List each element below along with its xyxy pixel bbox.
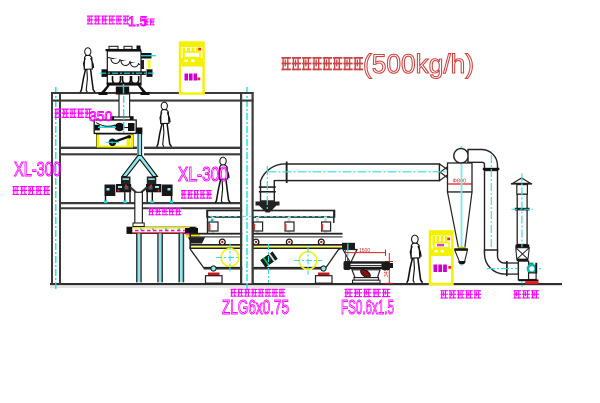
- svg-text:XL-300: XL-300: [178, 164, 228, 186]
- svg-text:1500: 1500: [359, 248, 370, 254]
- svg-text:(500kg/h): (500kg/h): [363, 49, 474, 79]
- svg-text:XL-300: XL-300: [14, 159, 61, 181]
- svg-text:FS0.6x1.5: FS0.6x1.5: [341, 297, 394, 319]
- svg-text:350: 350: [89, 108, 113, 124]
- svg-text:ZLG6x0.75: ZLG6x0.75: [222, 297, 289, 319]
